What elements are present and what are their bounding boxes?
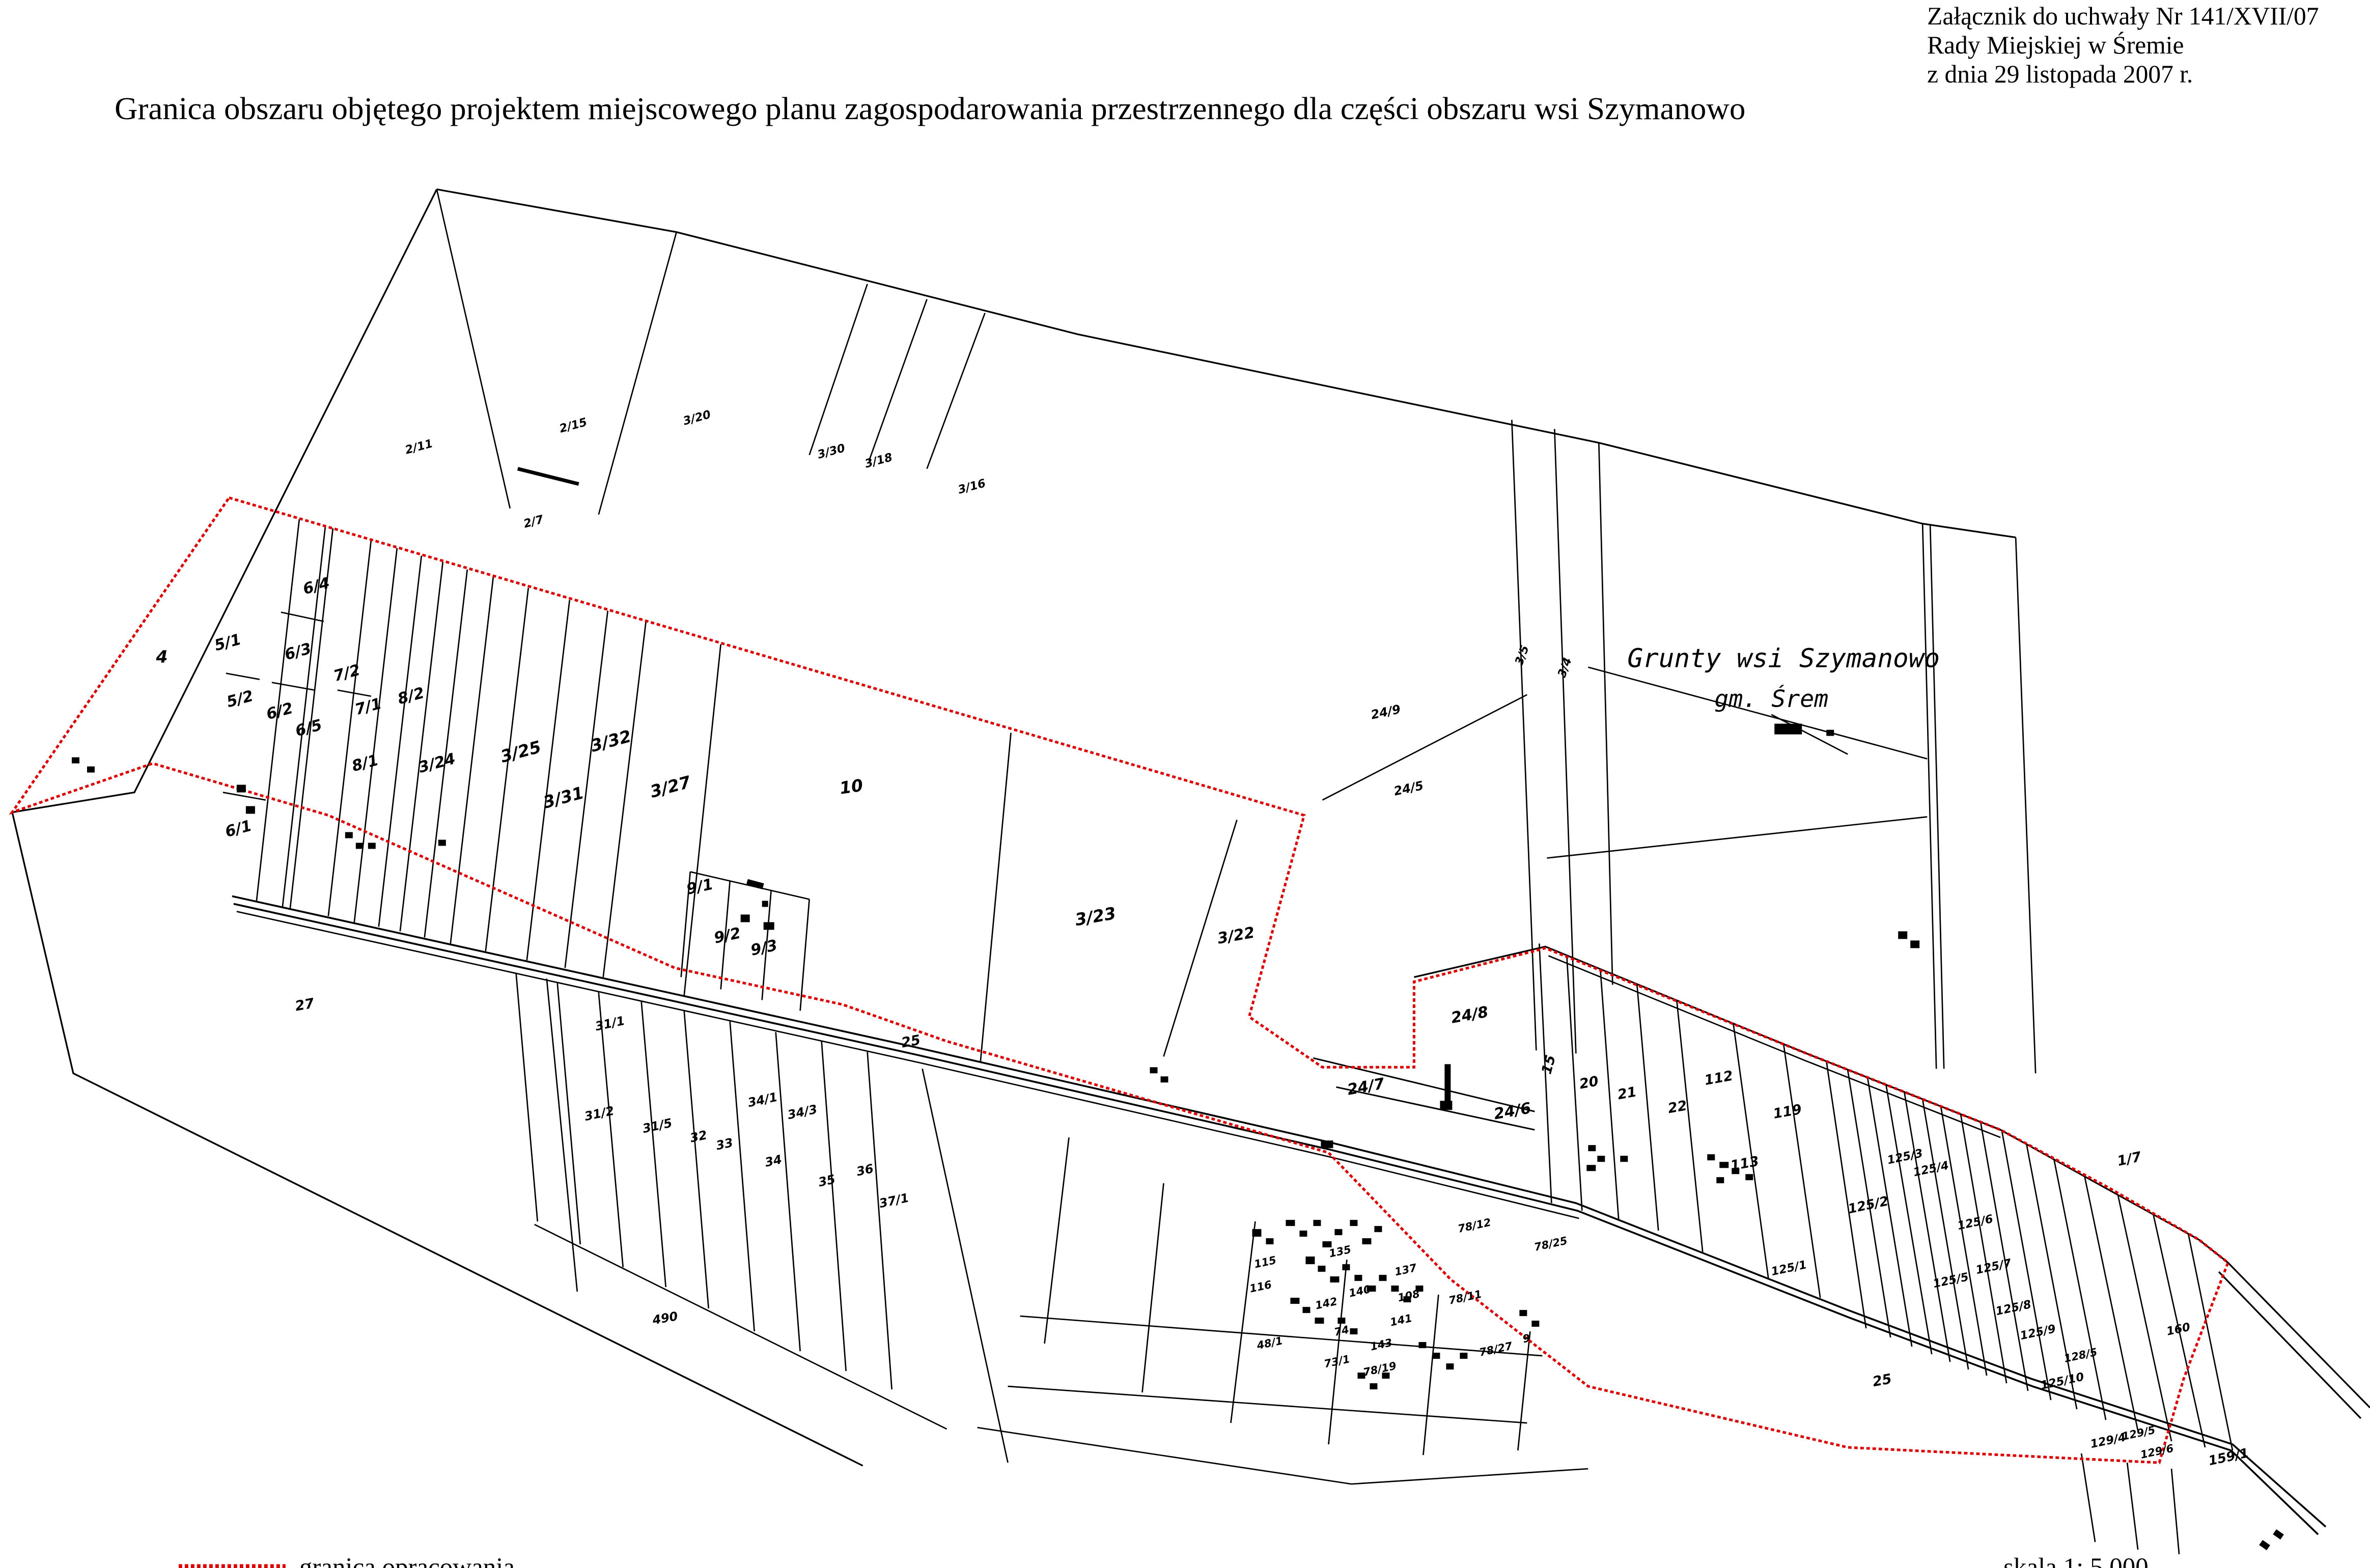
parcel-label: 108 (1397, 1287, 1421, 1304)
study-area-boundary (12, 498, 2228, 1463)
parcel-label: 2/11 (404, 437, 434, 457)
parcel-label: 32 (689, 1128, 708, 1145)
parcel-label: 129/5 (2121, 1424, 2157, 1443)
map-linework (12, 189, 2370, 1554)
map-title: Granica obszaru objętego projektem miejs… (115, 91, 1745, 126)
parcel-label: 125/2 (1847, 1193, 1890, 1217)
parcel-label: 2/7 (522, 513, 545, 530)
parcel-labels: 2/112/152/73/203/303/183/1645/16/46/35/2… (155, 408, 2250, 1469)
scale-label: skala 1: 5 000 (2003, 1553, 2149, 1568)
parcel-label: 78/12 (1457, 1216, 1492, 1235)
parcel-label: 129/6 (2139, 1442, 2175, 1461)
parcel-label: 9/3 (749, 937, 779, 960)
parcel-label: 34/3 (786, 1102, 818, 1123)
parcel-label: 2/15 (558, 415, 589, 435)
parcel-label: 78/19 (1362, 1360, 1398, 1379)
parcel-label: 159/1 (2207, 1445, 2250, 1469)
parcel-label: 125/6 (1956, 1212, 1994, 1233)
parcel-label: 5/1 (212, 631, 243, 655)
parcel-label: 125/4 (1912, 1159, 1950, 1179)
parcel-label: 3/18 (863, 451, 894, 470)
parcel-label: 125/9 (2019, 1322, 2057, 1342)
legend: granica opracowania skala 1: 5 000 (179, 1553, 2149, 1568)
parcel-label: 78/11 (1447, 1288, 1483, 1307)
parcel-label: 3/30 (816, 441, 847, 461)
parcel-label: 27 (294, 995, 316, 1014)
parcel-label: 24/9 (1370, 702, 1402, 722)
parcel-label: 20 (1578, 1073, 1600, 1092)
parcel-label: 490 (651, 1309, 679, 1327)
parcel-label: 125/5 (1932, 1270, 1970, 1291)
parcel-label: 74 (1333, 1324, 1350, 1339)
legend-boundary-label: granica opracowania (299, 1553, 515, 1568)
map-canvas: 2/112/152/73/203/303/183/1645/16/46/35/2… (0, 0, 2370, 1568)
parcel-label: 15 (1539, 1053, 1559, 1076)
parcel-label: 3/32 (589, 726, 633, 756)
parcel-label: 24/7 (1346, 1075, 1386, 1099)
parcel-label: 3/22 (1216, 923, 1257, 947)
parcel-label: 6/2 (264, 699, 295, 723)
parcel-label: 25 (1872, 1371, 1893, 1390)
parcel-label: 3/20 (682, 408, 712, 428)
parcel-label: 21 (1616, 1084, 1638, 1103)
parcel-label: 3/27 (648, 772, 693, 802)
parcel-label: 116 (1248, 1278, 1273, 1295)
parcel-label: 37/1 (878, 1191, 910, 1211)
parcel-label: 36 (855, 1161, 875, 1179)
parcel-label: 113 (1729, 1154, 1760, 1174)
parcel-label: 119 (1772, 1102, 1803, 1122)
parcel-label: 34 (764, 1152, 783, 1169)
attachment-note-line2: Rady Miejskiej w Śremie (1927, 31, 2184, 59)
parcel-label: 140 (1348, 1283, 1372, 1300)
parcel-label: 6/4 (301, 574, 331, 598)
parcel-label: 143 (1369, 1336, 1393, 1353)
parcel-label: 31/5 (641, 1116, 673, 1136)
parcel-label: 34/1 (746, 1090, 778, 1110)
area-name-line1: Grunty wsi Szymanowo (1627, 644, 1940, 674)
parcel-label: 22 (1667, 1098, 1688, 1116)
map-sheet: 2/112/152/73/203/303/183/1645/16/46/35/2… (0, 0, 2370, 1568)
parcel-label: 3/4 (1555, 656, 1575, 679)
parcel-label: 3/5 (1513, 643, 1532, 667)
parcel-label: 5/2 (225, 687, 255, 711)
attachment-note-line1: Załącznik do uchwały Nr 141/XVII/07 (1927, 2, 2319, 30)
parcel-label: 31/1 (594, 1014, 626, 1034)
parcel-label: 24/8 (1449, 1003, 1490, 1027)
parcel-label: 33 (715, 1135, 734, 1153)
parcel-label: 125/1 (1770, 1258, 1808, 1278)
parcel-label: 8/2 (396, 684, 426, 708)
parcel-label: 3/23 (1073, 903, 1117, 930)
parcel-label: 125/8 (1994, 1298, 2032, 1318)
parcel-label: 115 (1253, 1254, 1277, 1271)
parcel-label: 7/1 (353, 695, 383, 719)
parcel-label: 128/5 (2063, 1346, 2099, 1365)
parcel-label: 10 (839, 775, 865, 798)
parcel-label: 3/24 (416, 750, 457, 777)
parcel-label: 112 (1703, 1068, 1734, 1088)
parcel-label: 6/3 (283, 640, 313, 664)
header: Załącznik do uchwały Nr 141/XVII/07 Rady… (115, 2, 2319, 126)
parcel-label: 78/25 (1533, 1235, 1569, 1253)
area-name: Grunty wsi Szymanowo gm. Śrem (1627, 644, 1940, 713)
parcel-label: 142 (1314, 1295, 1339, 1312)
parcel-label: 24/5 (1392, 778, 1425, 799)
parcel-label: 1/7 (2116, 1149, 2143, 1169)
parcel-label: 6/1 (223, 817, 254, 841)
attachment-note-line3: z dnia 29 listopada 2007 r. (1927, 60, 2193, 88)
parcel-label: 141 (1389, 1312, 1413, 1329)
parcel-label: 9/2 (712, 925, 742, 947)
parcel-label: 48/1 (1255, 1334, 1284, 1352)
parcel-label: 3/16 (957, 477, 987, 496)
parcel-label: 73/1 (1323, 1353, 1351, 1370)
parcel-label: 4 (155, 647, 168, 667)
parcel-label: 8/1 (350, 751, 380, 775)
parcel-label: 78/27 (1478, 1340, 1514, 1359)
area-name-line2: gm. Śrem (1714, 685, 1828, 713)
parcel-label: 3/25 (498, 737, 543, 767)
parcel-label: 35 (817, 1172, 837, 1189)
parcel-label: 137 (1393, 1262, 1418, 1278)
parcel-label: 7/2 (331, 661, 362, 685)
parcel-label: 6/5 (293, 716, 324, 740)
parcel-label: 25 (900, 1032, 922, 1051)
parcel-label: 160 (2165, 1321, 2191, 1338)
parcel-label: 125/3 (1886, 1146, 1924, 1167)
